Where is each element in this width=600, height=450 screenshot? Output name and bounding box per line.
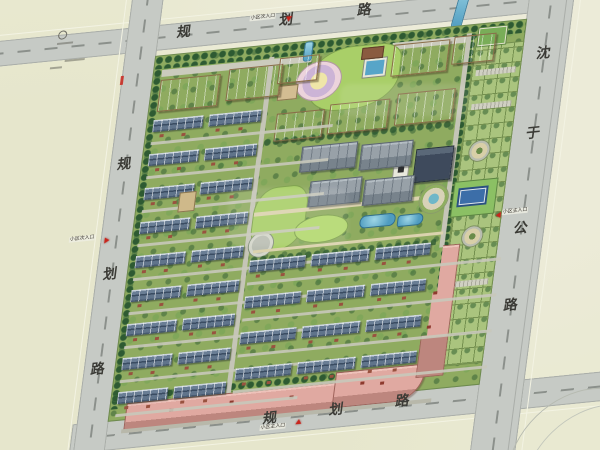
apartment-building — [451, 33, 497, 65]
garden-shed — [377, 298, 381, 301]
garden-shed — [124, 406, 128, 409]
commercial-roof-mark — [427, 325, 431, 328]
commercial-roof-mark — [433, 291, 437, 294]
garden-shed — [216, 297, 220, 300]
apartment-building — [157, 74, 221, 112]
garden-shed — [246, 346, 250, 349]
garden-shed — [238, 127, 242, 130]
garden-shed — [203, 399, 207, 402]
road-name-char: 划 — [328, 403, 344, 418]
garden-shed — [212, 331, 216, 334]
watermark — [340, 84, 470, 116]
siteplan-canvas: 规划路规划路规划路沈于公路小区次入口小区次入口小区主入口小区主入口 — [0, 0, 600, 450]
entrance-label: 小区次入口 — [69, 235, 96, 243]
entrance-marker-icon — [495, 212, 501, 219]
garden-shed — [189, 332, 193, 335]
garden-shed — [198, 264, 202, 267]
garden-shed — [313, 304, 317, 307]
garden-shed — [329, 375, 333, 378]
townhouse-building — [152, 115, 204, 132]
garden-shed — [137, 304, 141, 307]
townhouse-building — [139, 217, 191, 234]
garden-shed — [271, 345, 275, 348]
townhouse-building — [239, 327, 297, 345]
garden-shed — [266, 381, 270, 384]
garden-shed — [215, 128, 219, 131]
road-name-char: 路 — [356, 4, 372, 19]
road-name-char: 公 — [513, 222, 529, 237]
townhouse-building — [301, 321, 361, 339]
blue-roof-building — [459, 188, 487, 206]
garden-shed — [155, 337, 159, 340]
garden-shed — [344, 267, 348, 270]
garden-shed — [207, 196, 211, 199]
garden-shed — [172, 201, 176, 204]
road-name-char: 路 — [503, 299, 519, 314]
garden-shed — [159, 303, 163, 306]
midrise-building — [362, 175, 415, 206]
garden-shed — [251, 310, 255, 313]
road-name-char: 规 — [176, 26, 192, 41]
garden-shed — [368, 370, 372, 373]
pond — [396, 213, 424, 228]
apartment-building — [277, 54, 320, 84]
townhouse-building — [126, 319, 178, 336]
pond — [359, 212, 397, 229]
road-name-char: 于 — [525, 127, 541, 142]
garden-shed — [281, 273, 285, 276]
garden-shed — [181, 133, 185, 136]
garden-shed — [397, 332, 401, 335]
townhouse-building — [148, 149, 200, 166]
road-name-char: 沈 — [535, 47, 551, 62]
townhouse-building — [370, 279, 427, 297]
garden-shed — [180, 400, 184, 403]
townhouse-building — [121, 353, 173, 370]
garden-shed — [155, 168, 159, 171]
garden-shed — [133, 338, 137, 341]
townhouse-building — [130, 285, 182, 302]
plaza-square-core — [398, 166, 405, 173]
townhouse-building — [177, 347, 231, 364]
garden-shed — [142, 270, 146, 273]
entrance-marker-icon — [285, 16, 292, 22]
garden-shed — [168, 235, 172, 238]
garden-shed — [372, 334, 376, 337]
garden-shed — [382, 262, 386, 265]
townhouse-building — [244, 291, 302, 309]
road-name-char: 路 — [394, 395, 410, 410]
garden-shed — [276, 309, 280, 312]
entrance-marker-icon — [104, 237, 110, 244]
apartment-building — [225, 64, 283, 101]
garden-shed — [304, 376, 308, 379]
townhouse-building — [365, 315, 422, 333]
garden-shed — [159, 134, 163, 137]
road-name-char: 划 — [102, 268, 118, 283]
pavilion-building — [361, 46, 385, 60]
garden-shed — [151, 202, 155, 205]
courtyard-building — [177, 191, 197, 213]
watermark — [228, 188, 348, 246]
garden-shed — [207, 365, 211, 368]
annotation-mark — [50, 66, 62, 69]
apartment-building — [390, 39, 450, 77]
townhouse-building — [306, 285, 366, 303]
road-name-char: 路 — [90, 363, 106, 378]
garden-shed — [146, 236, 150, 239]
garden-shed — [184, 366, 188, 369]
townhouse-building — [186, 279, 240, 296]
garden-shed — [193, 298, 197, 301]
garden-shed — [402, 296, 406, 299]
townhouse-building — [204, 143, 258, 160]
road-name-char: 规 — [116, 158, 132, 173]
garden-shed — [334, 339, 338, 342]
garden-shed — [339, 303, 343, 306]
garden-shed — [164, 269, 168, 272]
garden-shed — [221, 263, 225, 266]
garden-shed — [234, 161, 238, 164]
garden-shed — [150, 371, 154, 374]
entrance-marker-icon — [295, 419, 302, 425]
garden-shed — [146, 405, 150, 408]
garden-shed — [202, 230, 206, 233]
garden-shed — [308, 340, 312, 343]
townhouse-building — [134, 251, 186, 268]
clubhouse-building — [412, 145, 454, 183]
townhouse-building — [190, 245, 244, 262]
townhouse-building — [208, 109, 262, 126]
commercial-roof-mark — [360, 381, 364, 384]
garden-shed — [407, 260, 411, 263]
garden-shed — [128, 372, 132, 375]
garden-shed — [392, 368, 396, 371]
garden-shed — [256, 274, 260, 277]
garden-shed — [242, 382, 246, 385]
townhouse-building — [182, 313, 236, 330]
swimming-pool — [363, 57, 387, 77]
garden-shed — [318, 268, 322, 271]
commercial-roof-mark — [380, 381, 384, 384]
garden-shed — [177, 167, 181, 170]
garden-shed — [211, 162, 215, 165]
